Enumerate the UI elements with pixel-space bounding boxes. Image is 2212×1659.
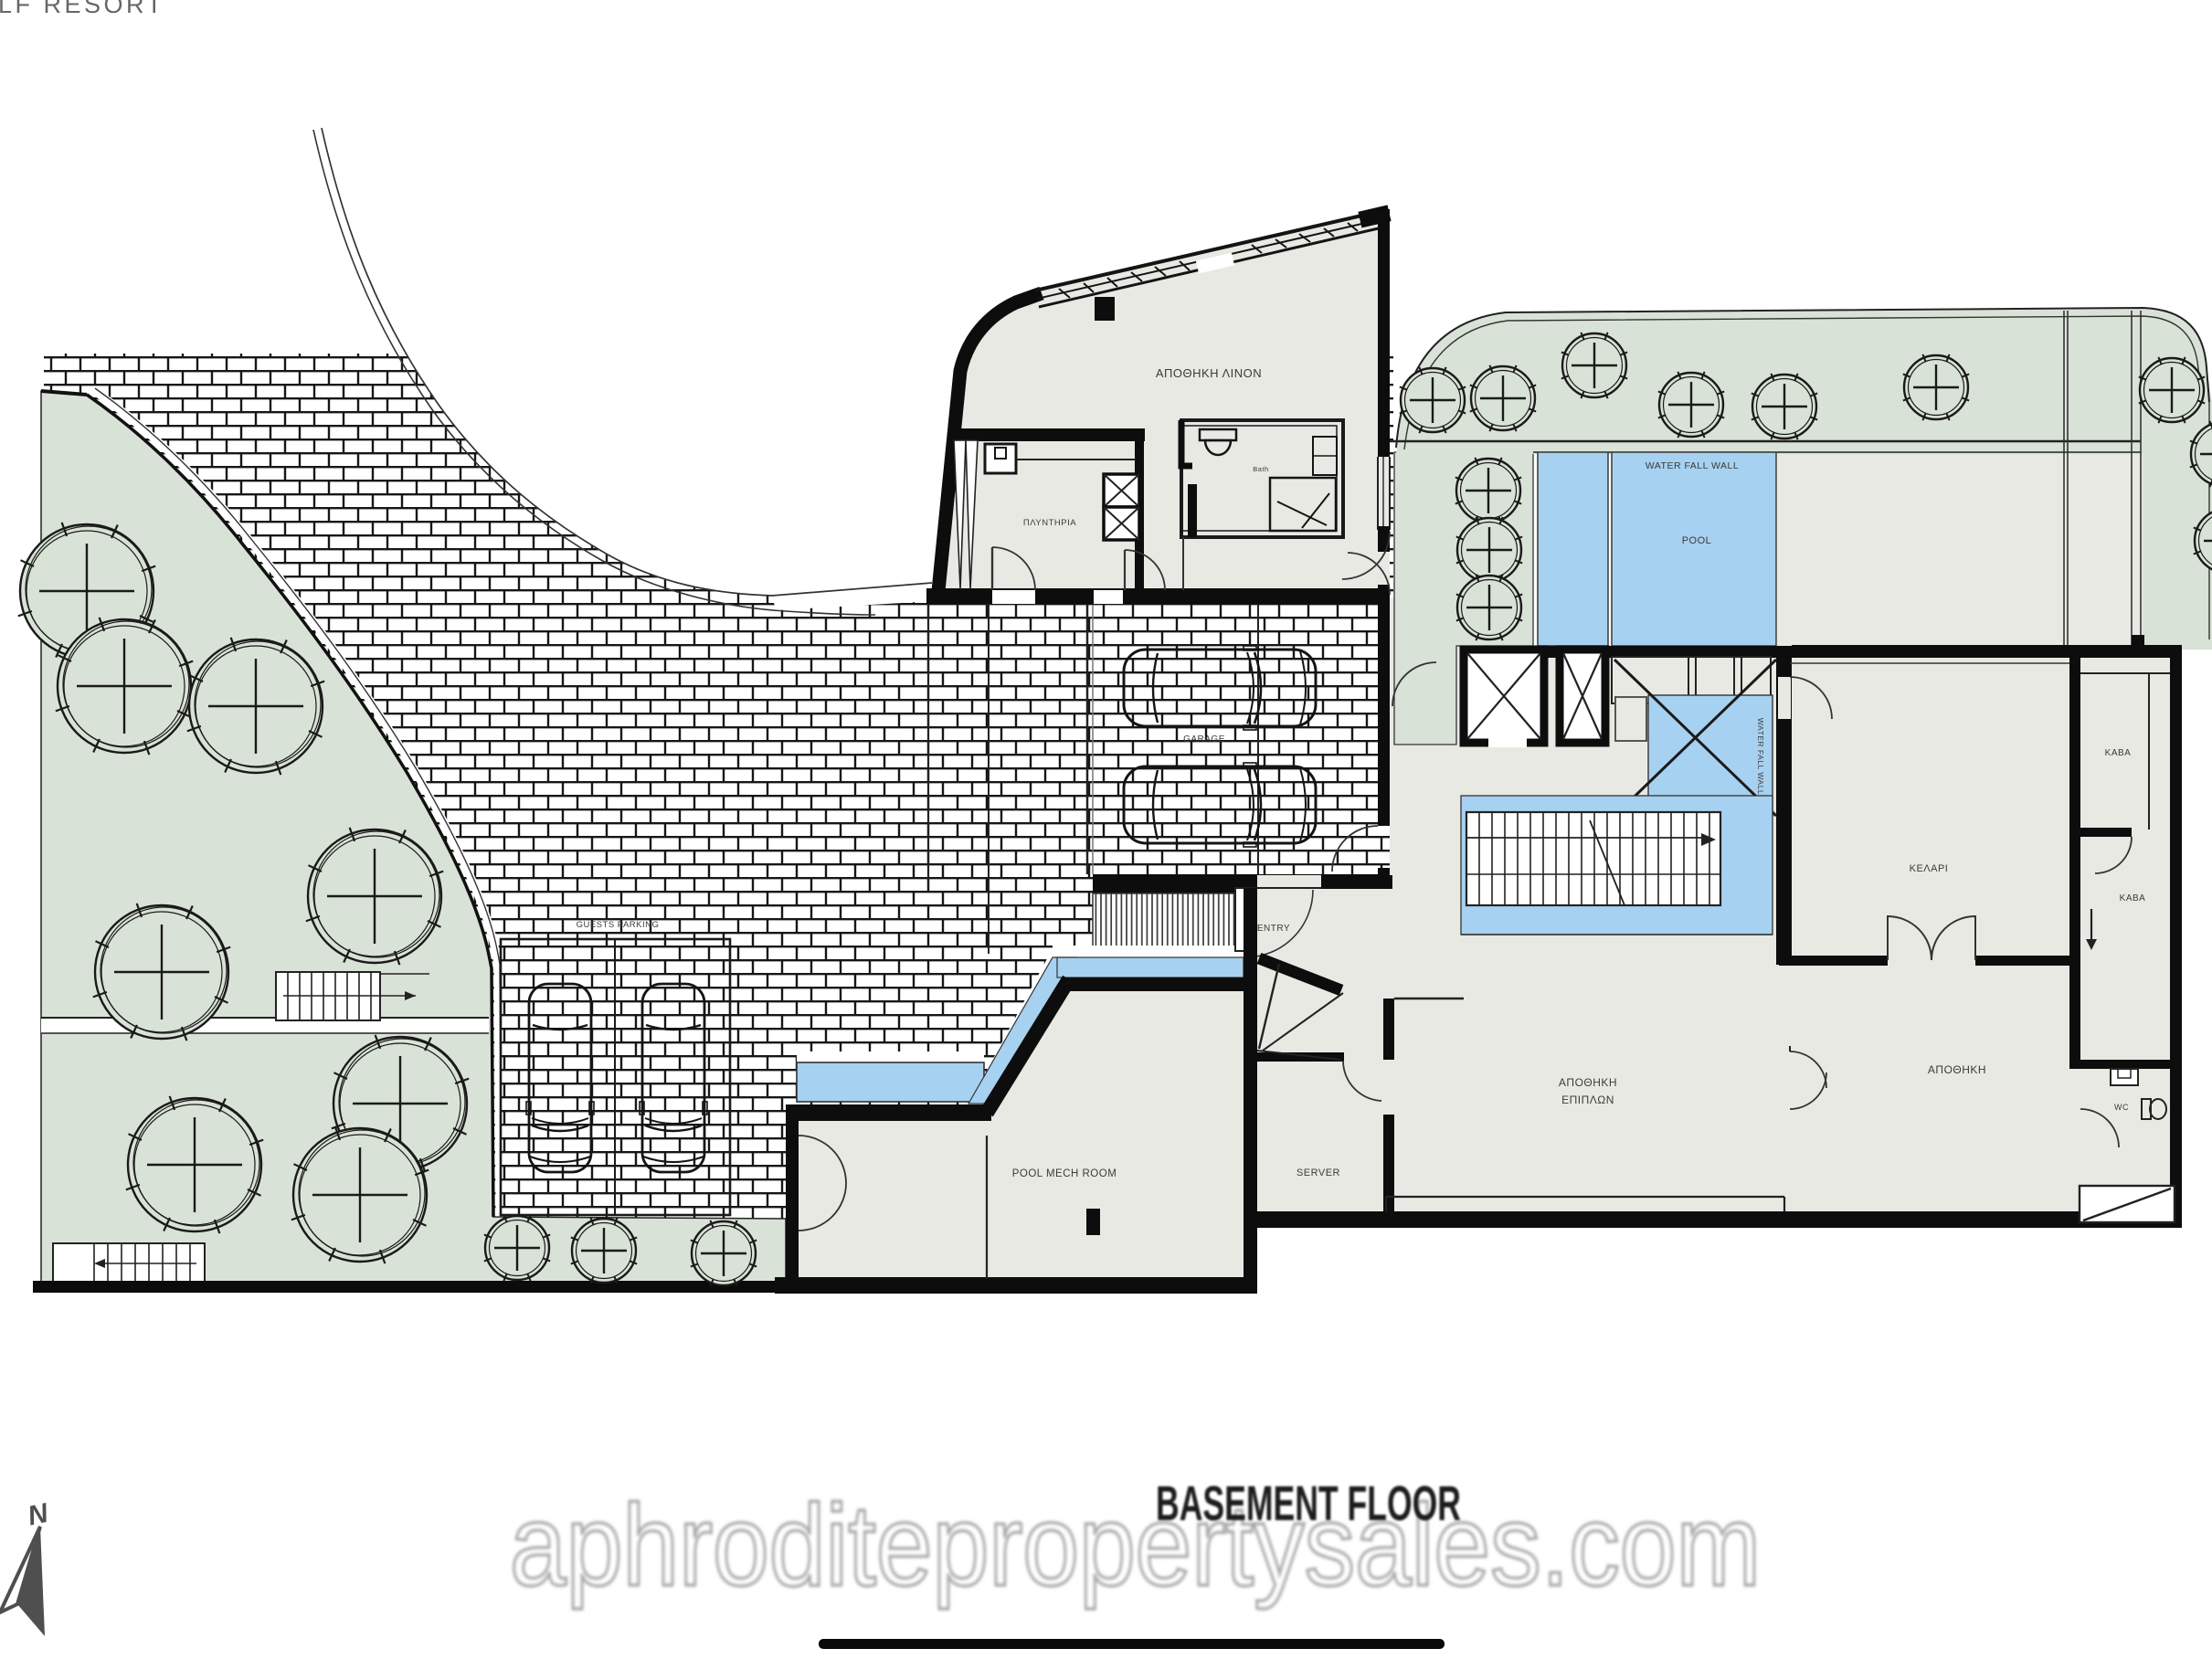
svg-text:WC: WC — [2114, 1103, 2129, 1112]
svg-text:ΑΠΟΘΗΚΗ: ΑΠΟΘΗΚΗ — [1559, 1076, 1617, 1089]
svg-text:GUESTS PARKING: GUESTS PARKING — [577, 920, 660, 930]
svg-text:POOL MECH ROOM: POOL MECH ROOM — [1012, 1168, 1117, 1179]
svg-text:SERVER: SERVER — [1297, 1168, 1340, 1178]
svg-text:ΚΑΒΑ: ΚΑΒΑ — [2120, 893, 2146, 903]
svg-text:ΠΛΥΝΤΗΡΙΑ: ΠΛΥΝΤΗΡΙΑ — [1023, 518, 1076, 528]
svg-text:ΑΠΟΘΗΚΗ: ΑΠΟΘΗΚΗ — [1928, 1063, 1986, 1076]
svg-text:GARAGE: GARAGE — [1183, 734, 1225, 745]
svg-text:ΕΠΙΠΛΩΝ: ΕΠΙΠΛΩΝ — [1561, 1094, 1614, 1106]
svg-text:ΑΠΟΘΗΚΗ ΛΙΝΟΝ: ΑΠΟΘΗΚΗ ΛΙΝΟΝ — [1156, 366, 1262, 380]
svg-text:ΚΕΛΑΡΙ: ΚΕΛΑΡΙ — [1910, 863, 1949, 874]
svg-text:BASEMENT FLOOR: BASEMENT FLOOR — [1156, 1476, 1461, 1531]
svg-text:WATER FALL WALL: WATER FALL WALL — [1756, 718, 1765, 795]
svg-text:Bath: Bath — [1253, 465, 1268, 473]
svg-text:WATER FALL WALL: WATER FALL WALL — [1646, 460, 1739, 471]
svg-text:aphroditepropertysales.com: aphroditepropertysales.com — [510, 1481, 1761, 1610]
svg-text:LF RESORT: LF RESORT — [0, 0, 165, 18]
svg-text:POOL: POOL — [1682, 535, 1712, 546]
svg-text:ENTRY: ENTRY — [1257, 924, 1290, 934]
svg-text:ΚΑΒΑ: ΚΑΒΑ — [2105, 748, 2132, 758]
